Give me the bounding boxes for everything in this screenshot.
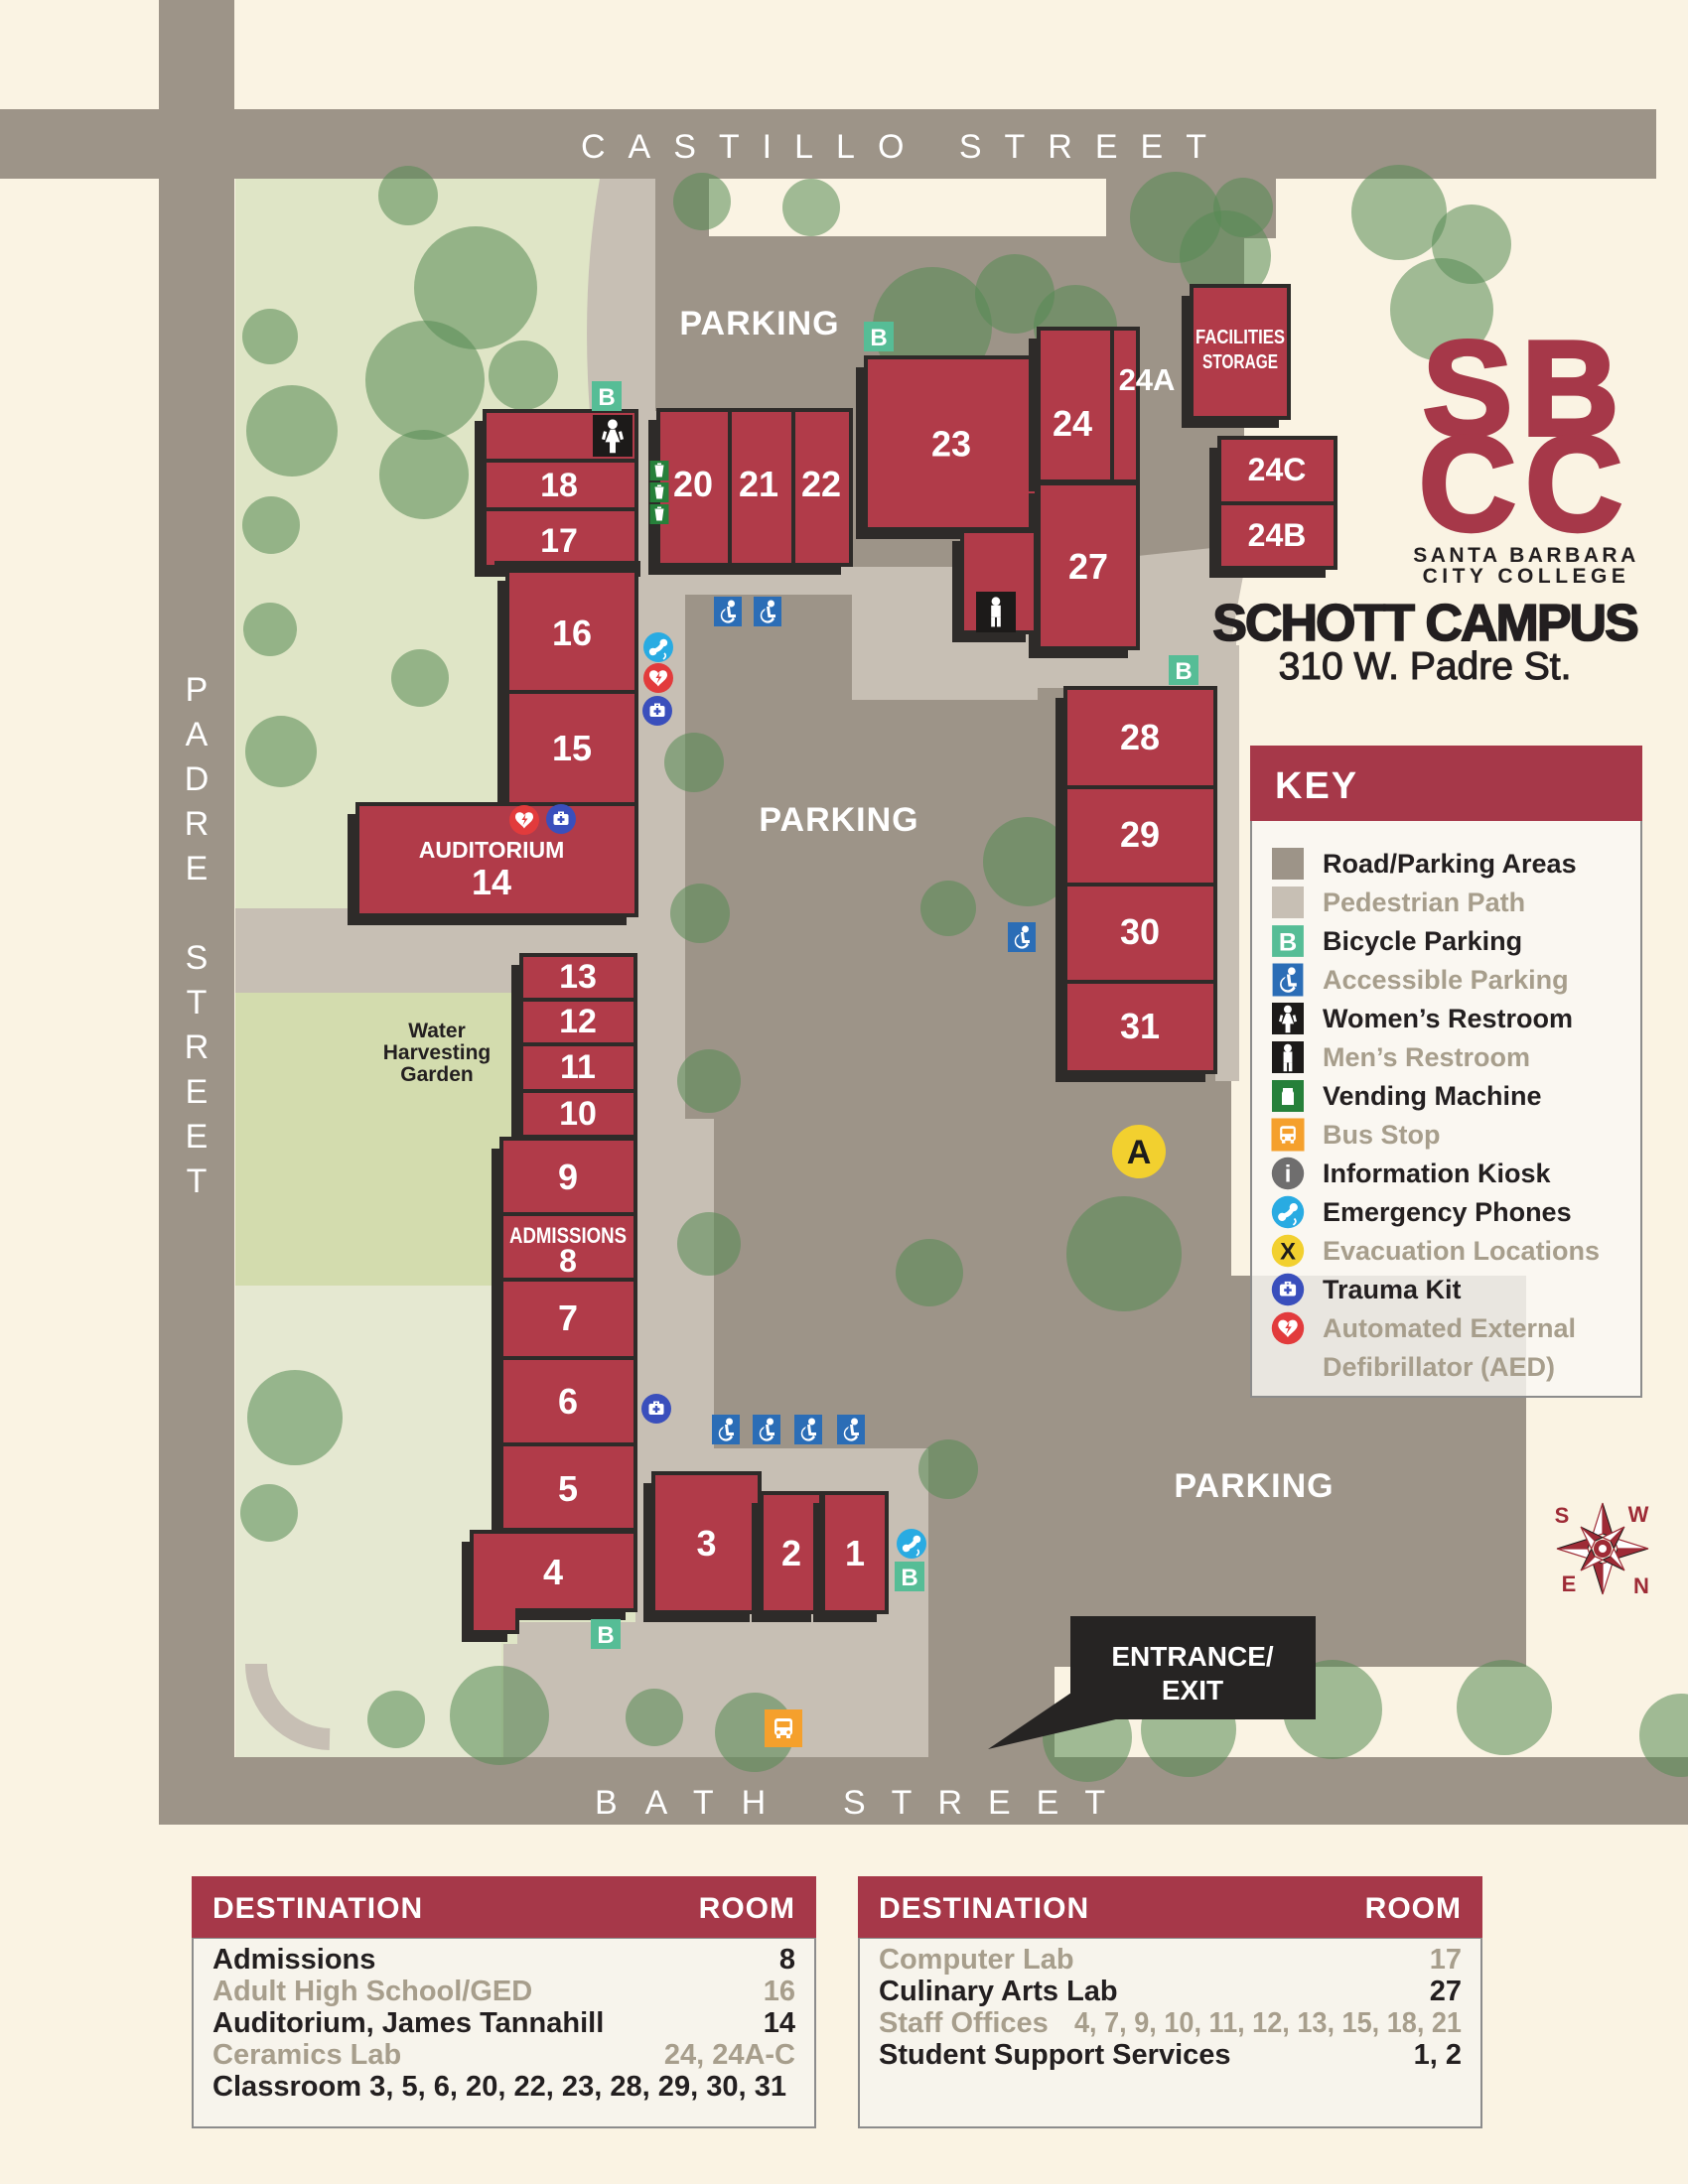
svg-text:T: T (187, 984, 208, 1022)
svg-text:Culinary Arts Lab: Culinary Arts Lab (879, 1976, 1118, 2007)
svg-text:Accessible Parking: Accessible Parking (1323, 965, 1569, 995)
svg-text:24: 24 (1053, 403, 1092, 444)
svg-text:17: 17 (540, 522, 578, 560)
svg-text:E: E (186, 1118, 209, 1156)
svg-text:Classroom 3, 5, 6, 20, 22, 23,: Classroom 3, 5, 6, 20, 22, 23, 28, 29, 3… (212, 2071, 786, 2103)
svg-text:27: 27 (1430, 1976, 1462, 2007)
svg-text:3: 3 (696, 1523, 716, 1564)
svg-text:17: 17 (1430, 1944, 1462, 1976)
svg-text:D: D (185, 760, 210, 798)
svg-text:1: 1 (845, 1533, 865, 1573)
svg-text:Evacuation Locations: Evacuation Locations (1323, 1236, 1600, 1266)
svg-text:Road/Parking Areas: Road/Parking Areas (1323, 849, 1577, 879)
svg-text:12: 12 (559, 1003, 597, 1040)
svg-text:Computer Lab: Computer Lab (879, 1944, 1074, 1976)
svg-text:15: 15 (552, 728, 592, 768)
svg-text:Staff Offices: Staff Offices (879, 2007, 1049, 2039)
svg-text:2: 2 (781, 1533, 801, 1573)
svg-text:SANTA BARBARA: SANTA BARBARA (1413, 544, 1639, 567)
svg-text:Student Support Services: Student Support Services (879, 2039, 1231, 2071)
svg-text:ROOM: ROOM (699, 1892, 795, 1925)
svg-text:7: 7 (558, 1297, 578, 1338)
svg-text:SCHOTT CAMPUS: SCHOTT CAMPUS (1212, 595, 1637, 652)
svg-text:22: 22 (801, 464, 841, 504)
svg-text:14: 14 (764, 2007, 795, 2039)
svg-text:Vending Machine: Vending Machine (1323, 1081, 1542, 1111)
svg-text:21: 21 (739, 464, 778, 504)
svg-text:N: N (1633, 1573, 1649, 1598)
svg-text:BATH: BATH (595, 1784, 793, 1822)
svg-text:Men’s Restroom: Men’s Restroom (1323, 1042, 1530, 1072)
svg-text:Garden: Garden (400, 1063, 474, 1086)
svg-text:DESTINATION: DESTINATION (212, 1892, 423, 1925)
svg-text:18: 18 (540, 467, 578, 504)
svg-text:R: R (185, 1028, 210, 1066)
svg-text:Auditorium, James Tannahill: Auditorium, James Tannahill (212, 2007, 604, 2039)
svg-text:24A: 24A (1119, 362, 1176, 397)
svg-text:PARKING: PARKING (759, 801, 918, 839)
svg-text:R: R (185, 805, 210, 843)
svg-text:4: 4 (543, 1552, 563, 1592)
svg-text:24C: 24C (1248, 452, 1307, 487)
svg-text:Water: Water (408, 1020, 466, 1042)
svg-text:E: E (186, 1073, 209, 1111)
svg-text:CITY COLLEGE: CITY COLLEGE (1423, 565, 1630, 588)
svg-text:Trauma Kit: Trauma Kit (1323, 1275, 1462, 1304)
svg-text:DESTINATION: DESTINATION (879, 1892, 1089, 1925)
svg-text:16: 16 (552, 613, 592, 653)
svg-text:27: 27 (1068, 546, 1108, 587)
svg-text:9: 9 (558, 1157, 578, 1197)
svg-text:Emergency Phones: Emergency Phones (1323, 1197, 1572, 1227)
svg-text:10: 10 (559, 1095, 597, 1133)
svg-text:16: 16 (764, 1976, 795, 2007)
svg-text:KEY: KEY (1275, 765, 1358, 807)
svg-text:13: 13 (559, 958, 597, 996)
svg-text:Information Kiosk: Information Kiosk (1323, 1159, 1551, 1188)
svg-text:1, 2: 1, 2 (1414, 2039, 1462, 2071)
svg-text:11: 11 (560, 1048, 596, 1086)
svg-text:24, 24A-C: 24, 24A-C (664, 2039, 795, 2071)
svg-text:A: A (1127, 1134, 1152, 1171)
svg-text:310 W. Padre St.: 310 W. Padre St. (1279, 645, 1572, 688)
svg-text:31: 31 (1120, 1006, 1160, 1046)
svg-text:Harvesting: Harvesting (383, 1041, 492, 1064)
svg-text:Defibrillator (AED): Defibrillator (AED) (1323, 1352, 1555, 1382)
svg-text:W: W (1628, 1502, 1649, 1527)
svg-text:Bus Stop: Bus Stop (1323, 1120, 1441, 1150)
svg-text:20: 20 (673, 464, 713, 504)
svg-text:24B: 24B (1248, 517, 1307, 553)
svg-text:E: E (1562, 1571, 1577, 1596)
svg-text:Pedestrian Path: Pedestrian Path (1323, 887, 1525, 917)
svg-text:Admissions: Admissions (212, 1944, 375, 1976)
svg-text:Women’s Restroom: Women’s Restroom (1323, 1004, 1573, 1033)
svg-text:Ceramics Lab: Ceramics Lab (212, 2039, 401, 2071)
svg-text:E: E (186, 850, 209, 887)
svg-text:ROOM: ROOM (1365, 1892, 1462, 1925)
svg-text:29: 29 (1120, 814, 1160, 855)
svg-text:PARKING: PARKING (1174, 1467, 1334, 1505)
svg-text:T: T (187, 1162, 208, 1200)
svg-text:STORAGE: STORAGE (1202, 351, 1278, 373)
svg-text:8: 8 (779, 1944, 795, 1976)
svg-text:P: P (186, 671, 209, 709)
svg-text:FACILITIES: FACILITIES (1196, 327, 1285, 348)
svg-text:6: 6 (558, 1381, 578, 1422)
svg-text:Adult High School/GED: Adult High School/GED (212, 1976, 532, 2007)
svg-text:S: S (1555, 1503, 1570, 1528)
svg-text:30: 30 (1120, 911, 1160, 952)
svg-text:AUDITORIUM: AUDITORIUM (419, 837, 565, 863)
svg-text:PARKING: PARKING (679, 305, 839, 342)
svg-text:4, 7, 9, 10, 11, 12, 13, 15, 1: 4, 7, 9, 10, 11, 12, 13, 15, 18, 21 (1074, 2007, 1462, 2039)
svg-text:CC: CC (1419, 408, 1631, 559)
svg-text:S: S (186, 939, 209, 977)
svg-text:Automated External: Automated External (1323, 1313, 1576, 1343)
svg-text:14: 14 (472, 862, 511, 902)
svg-text:Bicycle Parking: Bicycle Parking (1323, 926, 1522, 956)
svg-text:8: 8 (559, 1243, 577, 1279)
svg-text:ENTRANCE/: ENTRANCE/ (1111, 1641, 1274, 1672)
svg-text:EXIT: EXIT (1162, 1675, 1223, 1706)
svg-text:A: A (186, 716, 209, 753)
svg-text:CASTILLO STREET: CASTILLO STREET (581, 128, 1229, 166)
svg-text:5: 5 (558, 1468, 578, 1509)
svg-text:28: 28 (1120, 717, 1160, 757)
svg-text:23: 23 (931, 423, 971, 464)
svg-text:STREET: STREET (843, 1784, 1131, 1822)
